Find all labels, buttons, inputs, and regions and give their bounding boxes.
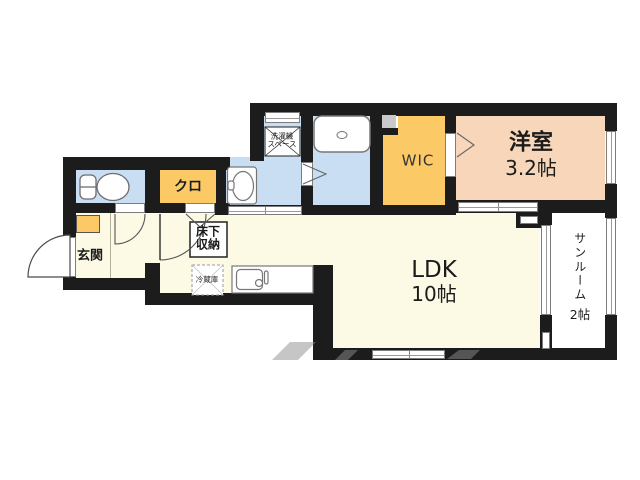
toilet-door-arc bbox=[115, 214, 145, 244]
ldk-name: LDK bbox=[411, 258, 457, 284]
washer-space-label: 洗濯機 スペース bbox=[267, 133, 296, 150]
kitchen-sink-icon bbox=[232, 266, 313, 293]
bathtub-icon bbox=[314, 116, 370, 152]
entry-door-arc bbox=[28, 235, 70, 277]
western-room-name: 洋室 bbox=[509, 132, 553, 157]
underfloor-storage-label: 床下 収納 bbox=[196, 226, 220, 253]
fixtures-layer bbox=[0, 0, 640, 480]
toilet-icon bbox=[80, 174, 129, 201]
ldk-size: 10帖 bbox=[411, 283, 456, 305]
sunroom-name: サンルーム bbox=[572, 232, 585, 302]
floorplan: 玄関 クロ 洗濯機 スペース WIC 洋室 3.2帖 LDK 10帖 サンルーム… bbox=[0, 0, 640, 480]
wic-label: WIC bbox=[402, 153, 435, 170]
sunroom-size: 2帖 bbox=[570, 308, 590, 322]
fridge-label: 冷蔵庫 bbox=[196, 276, 219, 284]
washbasin-icon bbox=[228, 167, 257, 204]
western-room-size: 3.2帖 bbox=[505, 157, 557, 179]
watermark-fragment bbox=[272, 342, 480, 360]
wic-door-mark bbox=[457, 133, 474, 157]
bath-door-mark bbox=[303, 164, 326, 184]
genkan-label: 玄関 bbox=[77, 250, 103, 265]
closet-label: クロ bbox=[174, 180, 202, 196]
